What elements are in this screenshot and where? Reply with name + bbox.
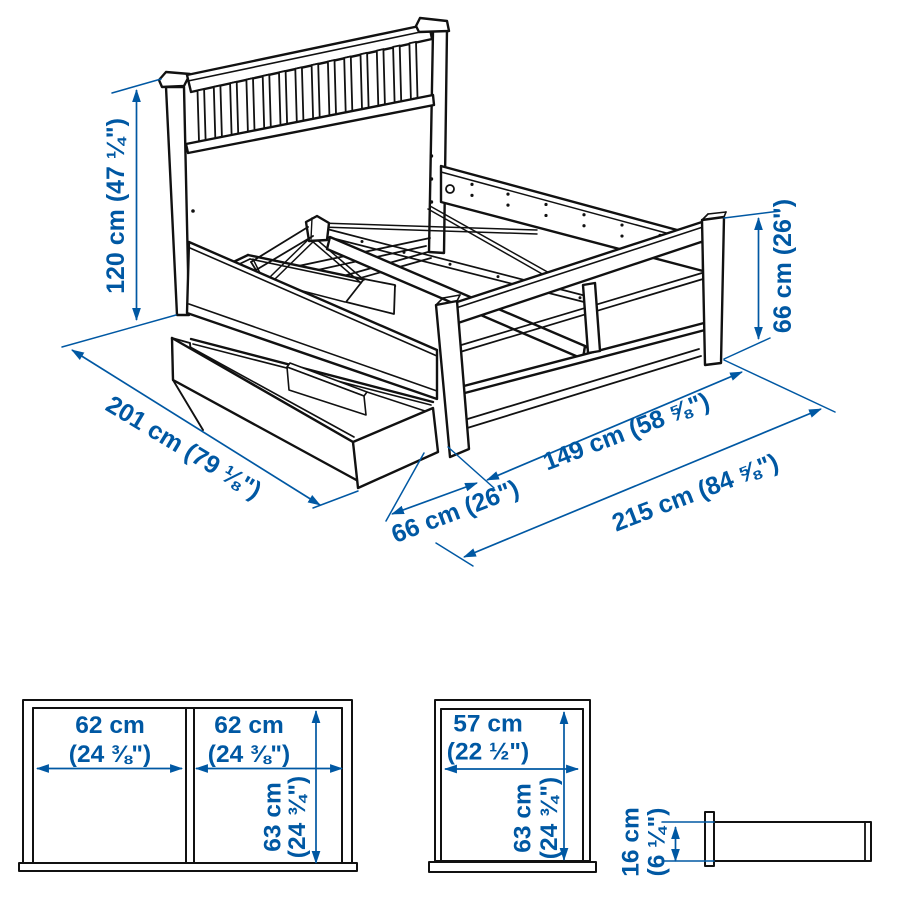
svg-text:(6 ¼"): (6 ¼") xyxy=(644,808,671,877)
svg-text:62 cm: 62 cm xyxy=(75,712,144,739)
svg-text:(22 ½"): (22 ½") xyxy=(447,739,529,766)
svg-text:(24 ¾"): (24 ¾") xyxy=(284,776,311,858)
svg-text:66 cm (26"): 66 cm (26") xyxy=(769,199,797,333)
svg-text:63 cm: 63 cm xyxy=(509,783,536,852)
svg-text:149 cm (58 ⅝"): 149 cm (58 ⅝") xyxy=(539,387,713,476)
svg-text:(24 ¾"): (24 ¾") xyxy=(536,777,563,859)
svg-text:63 cm: 63 cm xyxy=(259,782,286,851)
svg-text:(24 ⅜"): (24 ⅜") xyxy=(69,741,151,768)
svg-text:16 cm: 16 cm xyxy=(618,807,645,876)
svg-text:120 cm (47 ¼"): 120 cm (47 ¼") xyxy=(102,118,130,294)
svg-text:62 cm: 62 cm xyxy=(214,712,283,739)
svg-text:66 cm (26"): 66 cm (26") xyxy=(388,475,523,549)
svg-text:57 cm: 57 cm xyxy=(453,711,522,738)
svg-text:(24 ⅜"): (24 ⅜") xyxy=(208,741,290,768)
